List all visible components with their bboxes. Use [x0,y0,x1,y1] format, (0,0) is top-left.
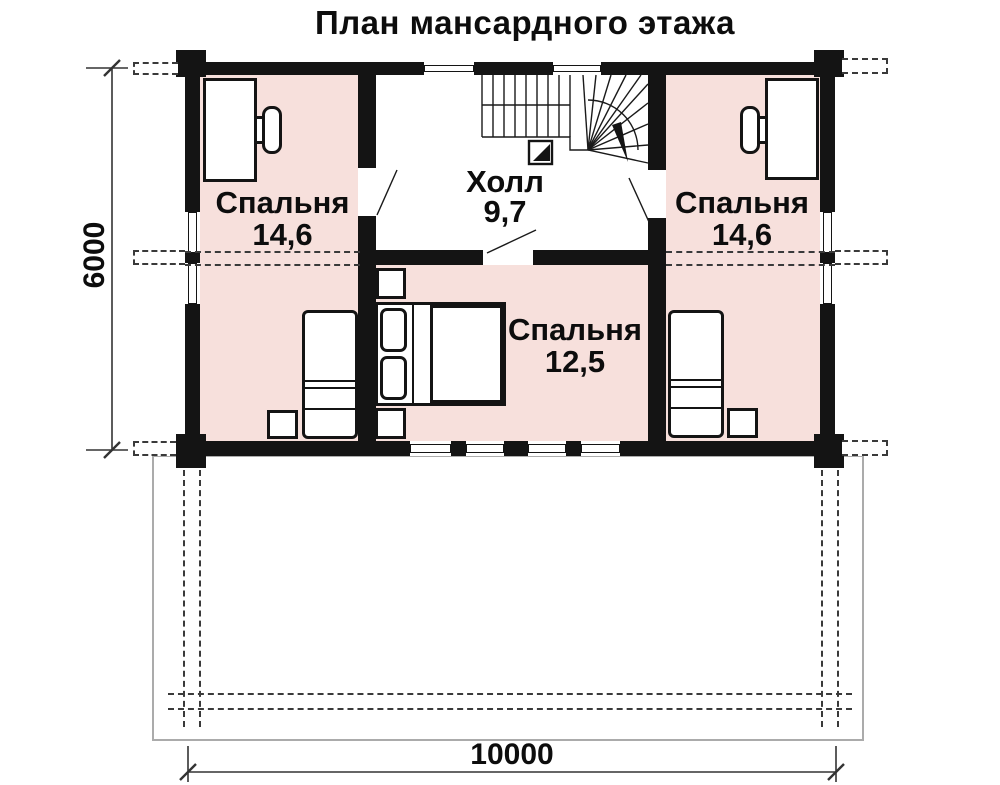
room-area-bedroom-right: 14,6 [662,219,822,251]
dimension-label-horizontal: 10000 [412,740,612,770]
room-area-bedroom-left: 14,6 [205,219,360,251]
room-label-bedroom-center: Спальня [495,314,655,346]
stair-entry-marker [529,141,552,164]
dimension-label-vertical: 6000 [80,195,110,315]
room-label-bedroom-left: Спальня [205,187,360,219]
room-area-hall: 9,7 [425,196,585,228]
room-label-bedroom-right: Спальня [662,187,822,219]
room-area-bedroom-center: 12,5 [495,346,655,378]
door-swing [487,230,536,253]
door-swing [629,178,649,222]
floor-plan: План мансардного этажа [0,0,1000,785]
plan-linework [0,0,1000,785]
door-swing [377,170,397,215]
